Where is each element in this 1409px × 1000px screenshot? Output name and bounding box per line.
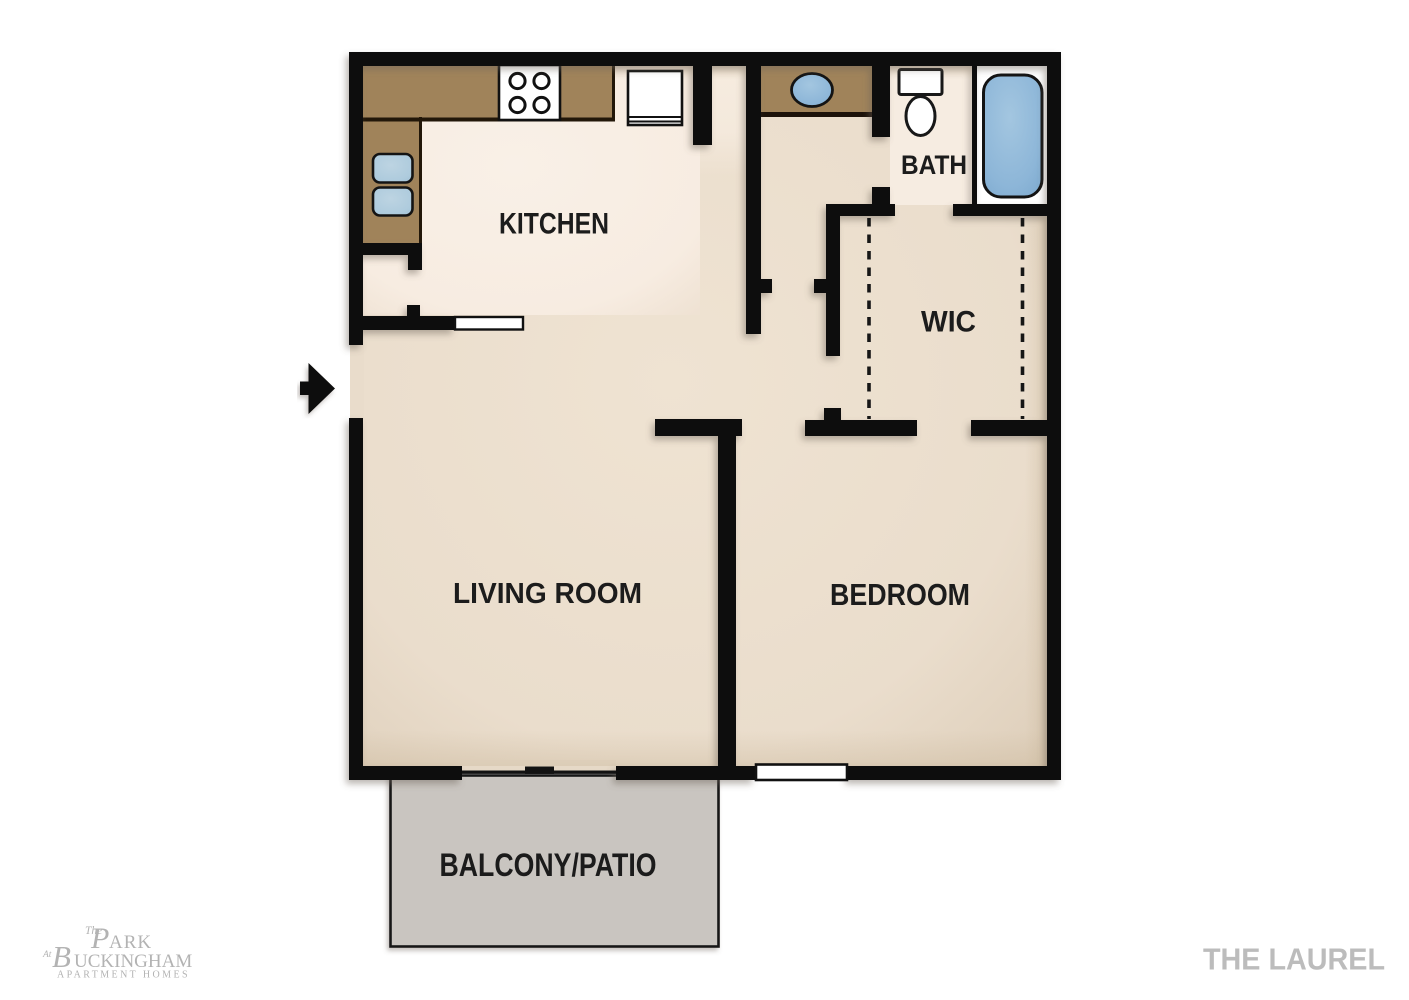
svg-text:ARK: ARK (109, 932, 152, 953)
svg-text:KITCHEN: KITCHEN (499, 208, 609, 241)
svg-text:THE LAUREL: THE LAUREL (1203, 942, 1385, 977)
svg-text:LIVING ROOM: LIVING ROOM (453, 578, 642, 610)
svg-text:At: At (42, 950, 52, 960)
svg-text:BATH: BATH (901, 150, 967, 180)
svg-text:BALCONY/PATIO: BALCONY/PATIO (440, 847, 657, 883)
svg-text:BEDROOM: BEDROOM (830, 577, 970, 612)
svg-text:WIC: WIC (921, 306, 976, 339)
svg-text:APARTMENT HOMES: APARTMENT HOMES (57, 970, 190, 981)
